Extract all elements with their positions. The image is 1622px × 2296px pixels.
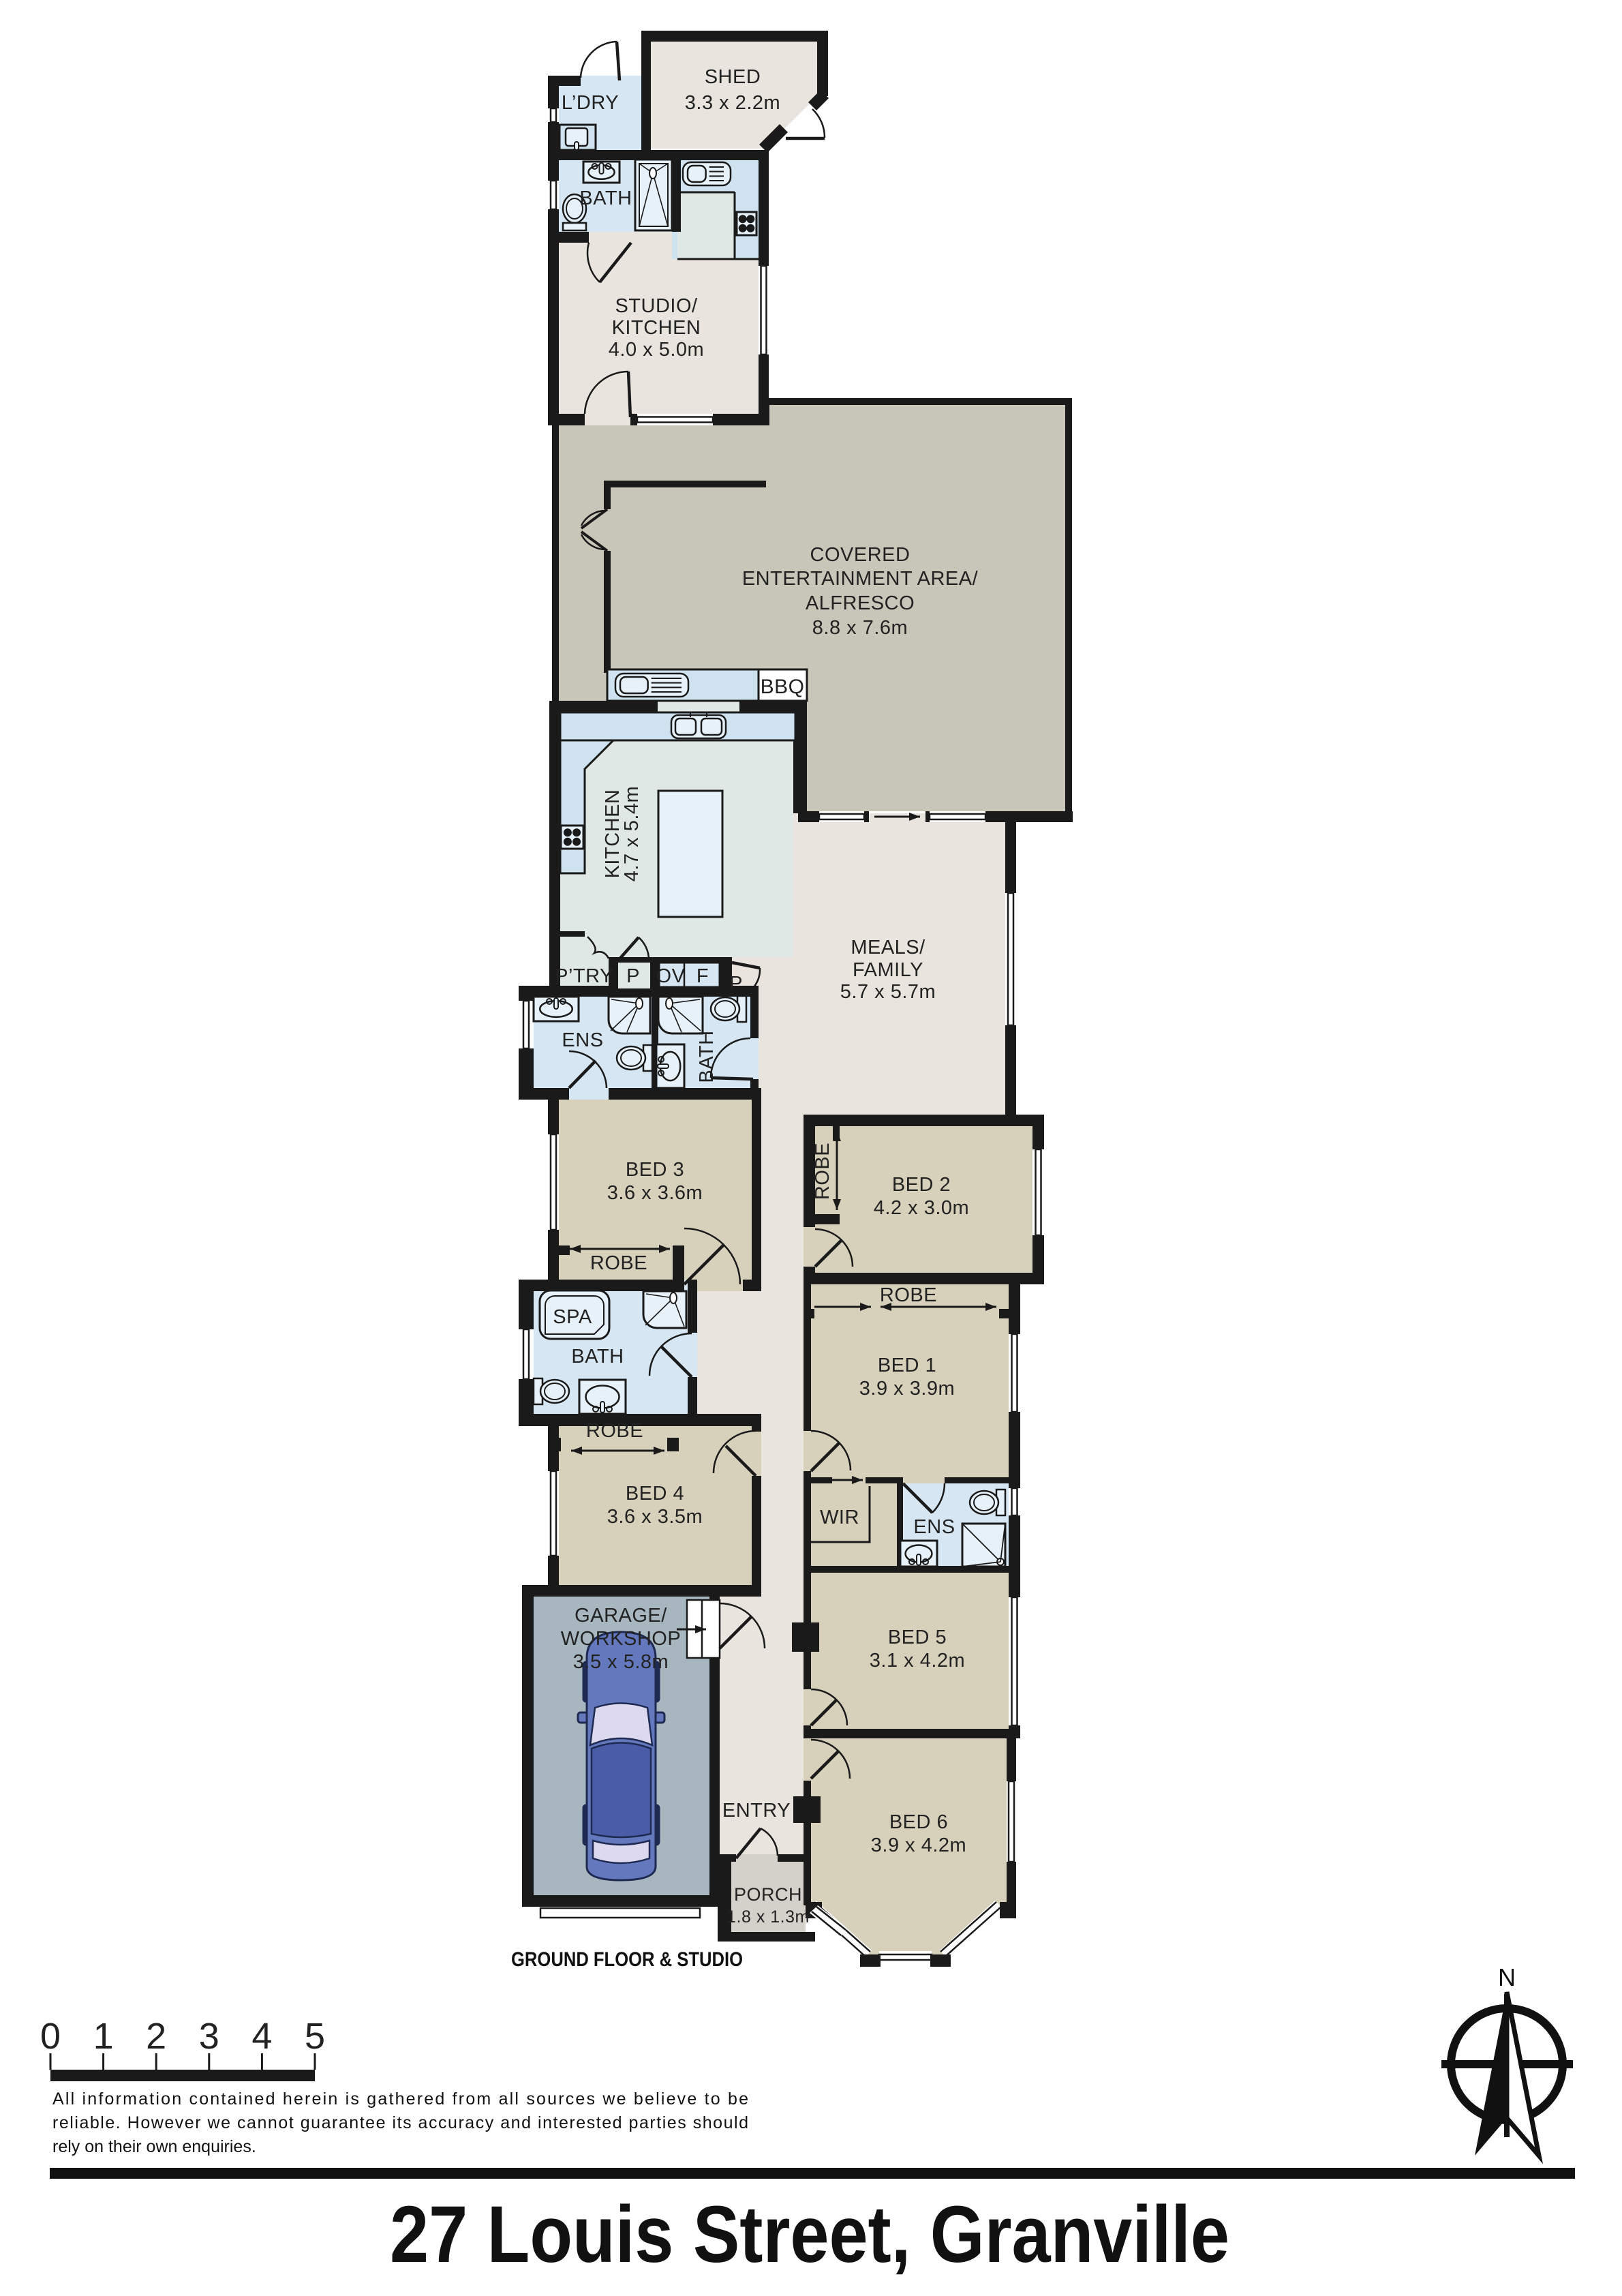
svg-text:F: F bbox=[697, 965, 709, 987]
svg-text:ROBE: ROBE bbox=[880, 1284, 937, 1306]
svg-text:P’TRY: P’TRY bbox=[555, 965, 613, 987]
svg-text:3.6 x 3.5m: 3.6 x 3.5m bbox=[607, 1506, 703, 1528]
svg-text:BED 1: BED 1 bbox=[878, 1355, 936, 1376]
svg-text:ENTERTAINMENT AREA/: ENTERTAINMENT AREA/ bbox=[742, 568, 979, 590]
svg-text:3.6 x 3.6m: 3.6 x 3.6m bbox=[607, 1182, 703, 1204]
svg-text:SPA: SPA bbox=[553, 1306, 592, 1328]
svg-text:27 Louis Street, Granville: 27 Louis Street, Granville bbox=[390, 2190, 1229, 2280]
svg-text:BATH: BATH bbox=[571, 1346, 624, 1368]
svg-text:BED 4: BED 4 bbox=[626, 1483, 684, 1505]
svg-text:COVERED: COVERED bbox=[810, 544, 911, 566]
svg-text:3.3 x 2.2m: 3.3 x 2.2m bbox=[685, 92, 780, 114]
svg-text:5: 5 bbox=[305, 2016, 325, 2057]
svg-text:ROBE: ROBE bbox=[586, 1420, 643, 1442]
svg-text:4.7 x 5.4m: 4.7 x 5.4m bbox=[621, 786, 643, 881]
svg-text:reliable. However we cannot gu: reliable. However we cannot guarantee it… bbox=[52, 2113, 748, 2132]
svg-text:3.1 x 4.2m: 3.1 x 4.2m bbox=[870, 1650, 965, 1672]
svg-text:SHED: SHED bbox=[705, 66, 761, 88]
svg-text:P: P bbox=[626, 965, 640, 987]
svg-text:3.9 x 4.2m: 3.9 x 4.2m bbox=[871, 1834, 966, 1856]
svg-text:rely on their own enquiries.: rely on their own enquiries. bbox=[52, 2137, 256, 2156]
svg-text:KITCHEN: KITCHEN bbox=[612, 317, 701, 339]
svg-text:GROUND FLOOR & STUDIO: GROUND FLOOR & STUDIO bbox=[511, 1948, 743, 1971]
svg-text:WIR: WIR bbox=[820, 1507, 859, 1528]
svg-text:OV: OV bbox=[656, 965, 686, 987]
svg-text:1.8 x 1.3m: 1.8 x 1.3m bbox=[726, 1907, 810, 1927]
svg-text:N: N bbox=[1498, 1963, 1516, 1991]
svg-text:BBQ: BBQ bbox=[761, 676, 805, 698]
svg-text:STUDIO/: STUDIO/ bbox=[615, 295, 698, 317]
svg-text:ENS: ENS bbox=[562, 1029, 603, 1051]
svg-text:2: 2 bbox=[146, 2016, 166, 2057]
svg-text:3.9 x 3.9m: 3.9 x 3.9m bbox=[859, 1378, 955, 1400]
svg-text:BATH: BATH bbox=[696, 1030, 718, 1083]
svg-text:FAMILY: FAMILY bbox=[853, 959, 923, 981]
svg-text:0: 0 bbox=[40, 2016, 61, 2057]
svg-text:ENTRY: ENTRY bbox=[722, 1800, 791, 1822]
svg-text:4.0 x 5.0m: 4.0 x 5.0m bbox=[609, 339, 704, 361]
svg-text:8.8 x 7.6m: 8.8 x 7.6m bbox=[812, 617, 908, 639]
svg-text:ALFRESCO: ALFRESCO bbox=[806, 592, 915, 614]
svg-text:BED 5: BED 5 bbox=[888, 1627, 947, 1648]
svg-text:4: 4 bbox=[251, 2016, 272, 2057]
svg-text:ENS: ENS bbox=[913, 1516, 955, 1538]
svg-text:4.2 x 3.0m: 4.2 x 3.0m bbox=[874, 1197, 969, 1219]
svg-text:L’DRY: L’DRY bbox=[562, 92, 619, 114]
svg-text:GARAGE/: GARAGE/ bbox=[575, 1605, 667, 1627]
svg-text:BED 2: BED 2 bbox=[892, 1174, 951, 1196]
svg-text:3.5 x 5.8m: 3.5 x 5.8m bbox=[573, 1651, 669, 1673]
svg-text:3: 3 bbox=[199, 2016, 219, 2057]
svg-text:ROBE: ROBE bbox=[590, 1252, 647, 1274]
svg-text:PORCH: PORCH bbox=[734, 1884, 802, 1905]
svg-text:BED 6: BED 6 bbox=[889, 1811, 948, 1833]
svg-text:BED 3: BED 3 bbox=[626, 1159, 684, 1181]
svg-text:1: 1 bbox=[93, 2016, 114, 2057]
svg-text:WORKSHOP: WORKSHOP bbox=[561, 1628, 681, 1650]
svg-text:5.7 x 5.7m: 5.7 x 5.7m bbox=[840, 981, 936, 1003]
svg-text:ROBE: ROBE bbox=[812, 1143, 833, 1200]
svg-text:P: P bbox=[729, 973, 743, 995]
svg-text:MEALS/: MEALS/ bbox=[851, 937, 925, 958]
svg-text:BATH: BATH bbox=[579, 187, 632, 209]
